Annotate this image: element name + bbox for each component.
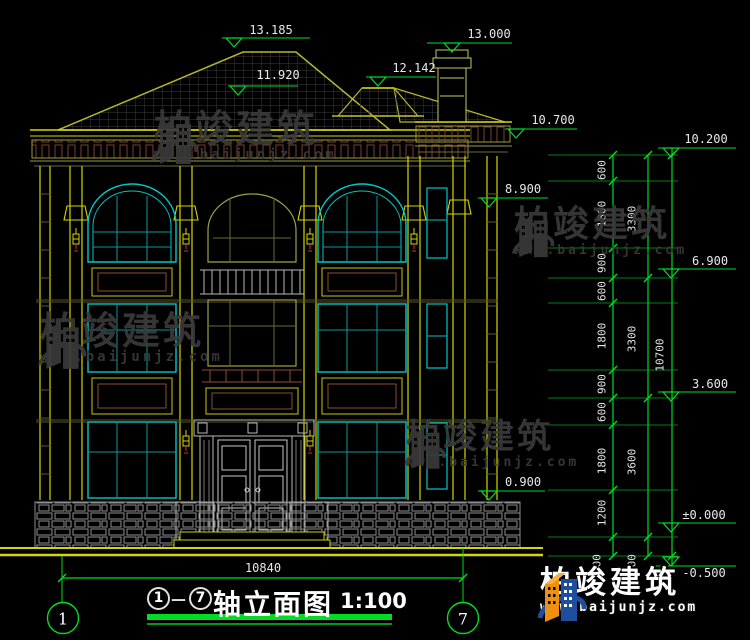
watermark-logo-icon	[150, 110, 200, 172]
elevation-label-ridge: 13.185	[249, 23, 292, 37]
dim-overall-width: 10840	[245, 561, 281, 575]
title-dash: —	[171, 590, 186, 608]
title-axis-end-bubble: 7	[189, 587, 212, 610]
elevation-label-roof-break: 11.920	[256, 68, 299, 82]
chimney	[433, 50, 471, 122]
elevation-label-parapet: 10.200	[684, 132, 727, 146]
dim-inner-5: 1800	[596, 323, 609, 350]
dim-inner-8: 1800	[596, 448, 609, 475]
drawing-title: 轴立面图	[213, 583, 333, 623]
axis-bubble-1: 1	[58, 610, 68, 629]
drawing-scale: 1:100	[340, 589, 407, 613]
dim-inner-6: 900	[596, 374, 609, 394]
watermark-left: 柏竣建筑 www.baijunjz.com	[36, 312, 223, 365]
elevation-label-chimney: 13.000	[467, 27, 510, 41]
dim-total-height: 10700	[654, 338, 667, 371]
elevation-label-lower-ridge: 12.142	[392, 61, 435, 75]
stone-base	[35, 502, 520, 548]
brand-logo: 柏竣建筑 www.baijunjz.com	[536, 566, 697, 615]
center-bay	[194, 194, 314, 536]
cad-elevation-canvas: 13.185 13.000 12.142 11.920 10.700 8.900…	[0, 0, 750, 640]
elevation-label-ground: ±0.000	[682, 508, 725, 522]
elevation-label-eave: 10.700	[531, 113, 574, 127]
ground-line	[0, 548, 543, 555]
elevation-label-3f-window: 8.900	[505, 182, 541, 196]
bay2-windows	[318, 184, 406, 498]
watermark-right: 柏竣建筑 www.baijunjz.com	[510, 207, 687, 258]
watermark-top: 柏竣建筑 www.baijunjz.com	[150, 110, 337, 163]
watermark-center-low: 柏竣建筑 www.baijunjz.com	[402, 420, 579, 470]
dim-inner-9: 1200	[596, 500, 609, 527]
dim-floor-2: 3300	[626, 326, 639, 353]
axis-bubble-7: 7	[458, 610, 468, 629]
title-axis-start-bubble: 1	[147, 587, 170, 610]
dim-floor-3: 3600	[626, 449, 639, 476]
dim-inner-1: 600	[596, 160, 609, 180]
brand-logo-icon	[536, 566, 586, 630]
elevation-label-3f: 6.900	[692, 254, 728, 268]
elevation-label-1f-sill: 0.900	[505, 475, 541, 489]
dim-inner-4: 600	[596, 281, 609, 301]
elevation-label-2f: 3.600	[692, 377, 728, 391]
dim-inner-7: 600	[596, 402, 609, 422]
